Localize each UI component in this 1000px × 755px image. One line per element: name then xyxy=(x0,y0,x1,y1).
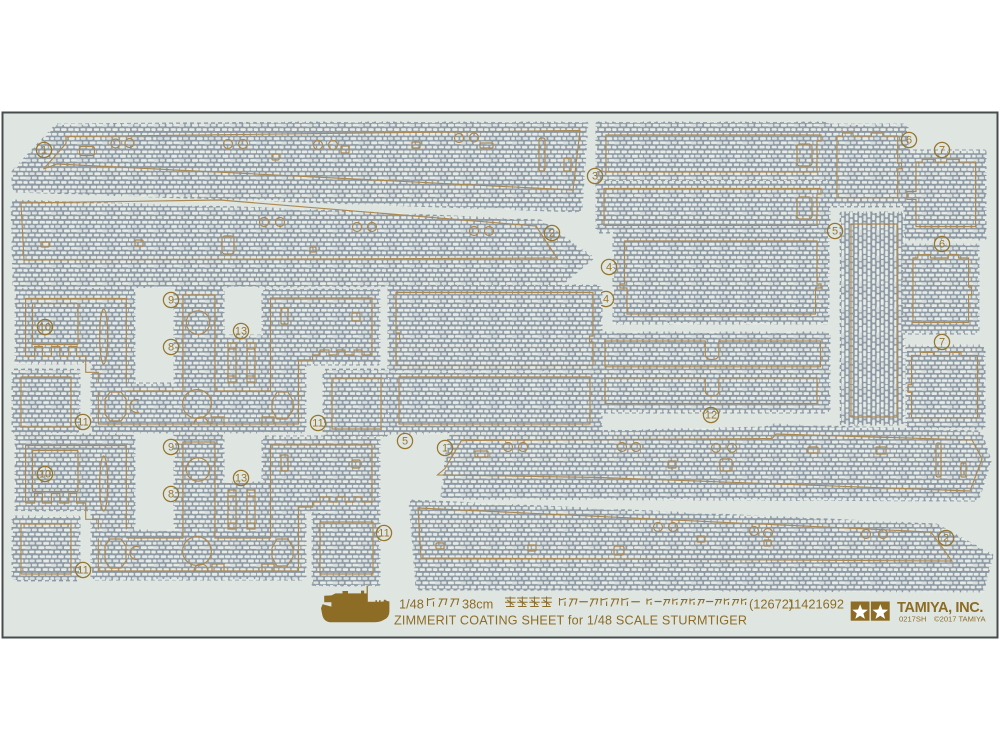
svg-text:1: 1 xyxy=(442,443,448,455)
svg-text:2: 2 xyxy=(943,533,949,545)
svg-text:11: 11 xyxy=(312,418,323,430)
svg-text:11421692: 11421692 xyxy=(788,597,844,612)
svg-text:6: 6 xyxy=(906,135,912,147)
svg-text:7: 7 xyxy=(939,145,945,157)
svg-text:4: 4 xyxy=(603,294,609,306)
svg-text:3: 3 xyxy=(592,171,598,183)
svg-text:10: 10 xyxy=(39,469,51,481)
svg-text:9: 9 xyxy=(168,295,174,307)
svg-text:10: 10 xyxy=(39,322,51,334)
svg-text:13: 13 xyxy=(235,473,247,485)
svg-text:11: 11 xyxy=(77,565,88,577)
svg-text:1/48: 1/48 xyxy=(399,597,424,612)
svg-text:6: 6 xyxy=(939,239,945,251)
svg-text:(12672): (12672) xyxy=(749,597,793,612)
svg-text:©2017 TAMIYA: ©2017 TAMIYA xyxy=(934,615,987,624)
svg-text:11: 11 xyxy=(378,528,389,540)
svg-text:13: 13 xyxy=(235,326,247,338)
svg-text:9: 9 xyxy=(168,442,174,454)
svg-text:8: 8 xyxy=(168,342,174,354)
svg-text:5: 5 xyxy=(402,436,408,448)
svg-text:2: 2 xyxy=(549,228,555,240)
svg-text:1: 1 xyxy=(41,145,47,157)
svg-text:38cm: 38cm xyxy=(462,597,493,612)
svg-text:12: 12 xyxy=(705,410,717,422)
svg-text:0217SH: 0217SH xyxy=(899,615,926,624)
svg-text:7: 7 xyxy=(939,337,945,349)
svg-text:4: 4 xyxy=(606,262,612,274)
svg-text:11: 11 xyxy=(77,417,88,429)
svg-text:5: 5 xyxy=(832,226,838,238)
svg-text:8: 8 xyxy=(168,489,174,501)
svg-text:ZIMMERIT COATING SHEET for 1/4: ZIMMERIT COATING SHEET for 1/48 SCALE ST… xyxy=(394,614,747,628)
